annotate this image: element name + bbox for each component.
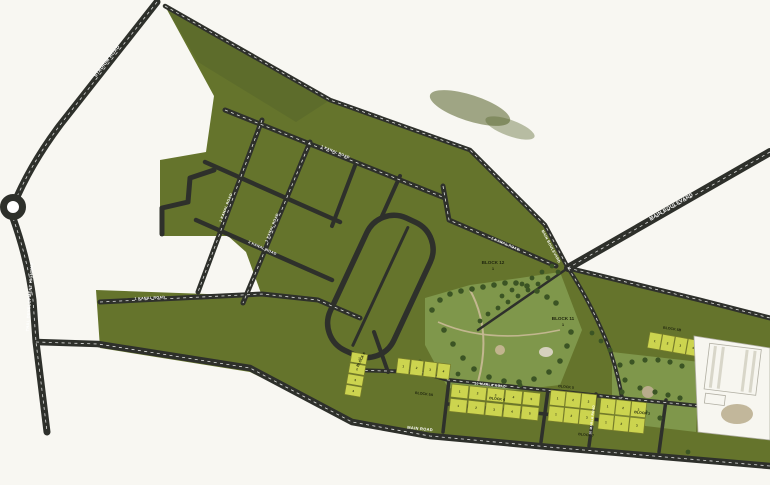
tree-icon xyxy=(590,331,595,336)
tree-icon xyxy=(608,348,613,353)
tree-icon xyxy=(510,288,515,293)
tree-icon xyxy=(546,369,552,375)
dirt-ground xyxy=(721,404,753,424)
tree-icon xyxy=(622,377,627,382)
tree-icon xyxy=(564,343,570,349)
park-pond xyxy=(539,347,553,357)
tree-icon xyxy=(437,297,443,303)
tree-icon xyxy=(619,389,624,394)
stadium-complex xyxy=(694,336,770,440)
tree-icon xyxy=(518,383,523,388)
tree-icon xyxy=(568,329,574,335)
tree-icon xyxy=(480,284,486,290)
tree-icon xyxy=(478,319,483,324)
master-plan-map: 1234 1234 1234512345 123123 123123 1234 … xyxy=(0,0,770,485)
tree-icon xyxy=(501,378,507,384)
tree-icon xyxy=(540,270,545,275)
tree-icon xyxy=(642,357,647,362)
tree-icon xyxy=(458,288,464,294)
tree-icon xyxy=(530,276,535,281)
block-label-12: BLOCK 12 xyxy=(482,260,505,265)
annex-building xyxy=(704,393,725,405)
tree-icon xyxy=(534,288,540,294)
tree-icon xyxy=(536,282,541,287)
tree-icon xyxy=(553,300,559,306)
tree-icon xyxy=(429,307,435,313)
road-label-boulevard: MAIN BOULEVARD xyxy=(648,192,694,222)
tree-icon xyxy=(655,357,660,362)
tree-icon xyxy=(617,362,622,367)
tree-icon xyxy=(556,270,561,275)
tree-icon xyxy=(677,395,682,400)
stadium-road xyxy=(13,2,157,206)
tree-icon xyxy=(637,385,642,390)
tree-icon xyxy=(520,282,525,287)
tree-icon xyxy=(544,294,550,300)
tree-icon xyxy=(665,392,670,397)
tree-icon xyxy=(513,280,519,286)
tree-icon xyxy=(506,300,511,305)
tree-icon xyxy=(502,280,508,286)
tree-icon xyxy=(471,366,477,372)
tree-icon xyxy=(516,294,521,299)
tree-icon xyxy=(629,359,634,364)
road-label-stadium: STADIUM ROAD xyxy=(93,44,121,78)
park-plaza xyxy=(642,386,654,398)
block-label-11: BLOCK 11 xyxy=(552,316,575,321)
tree-icon xyxy=(486,374,492,380)
tree-icon xyxy=(469,286,475,292)
roundabout xyxy=(4,198,23,217)
tree-icon xyxy=(531,376,537,382)
tree-icon xyxy=(500,294,505,299)
tree-icon xyxy=(557,358,563,364)
tree-icon xyxy=(667,359,672,364)
tree-icon xyxy=(550,264,555,269)
tree-icon xyxy=(441,327,447,333)
tree-icon xyxy=(486,312,491,317)
park-plaza xyxy=(495,345,505,355)
tree-icon xyxy=(546,276,551,281)
tree-icon xyxy=(450,341,456,347)
tree-icon xyxy=(657,415,662,420)
tree-icon xyxy=(447,291,453,297)
tree-icon xyxy=(686,450,691,455)
tree-icon xyxy=(679,363,684,368)
tree-icon xyxy=(456,372,461,377)
tree-icon xyxy=(491,282,497,288)
tree-icon xyxy=(460,355,466,361)
land-shade xyxy=(483,112,537,145)
tree-icon xyxy=(496,306,501,311)
tree-icon xyxy=(599,339,604,344)
tree-icon xyxy=(526,288,531,293)
tree-icon xyxy=(652,389,657,394)
